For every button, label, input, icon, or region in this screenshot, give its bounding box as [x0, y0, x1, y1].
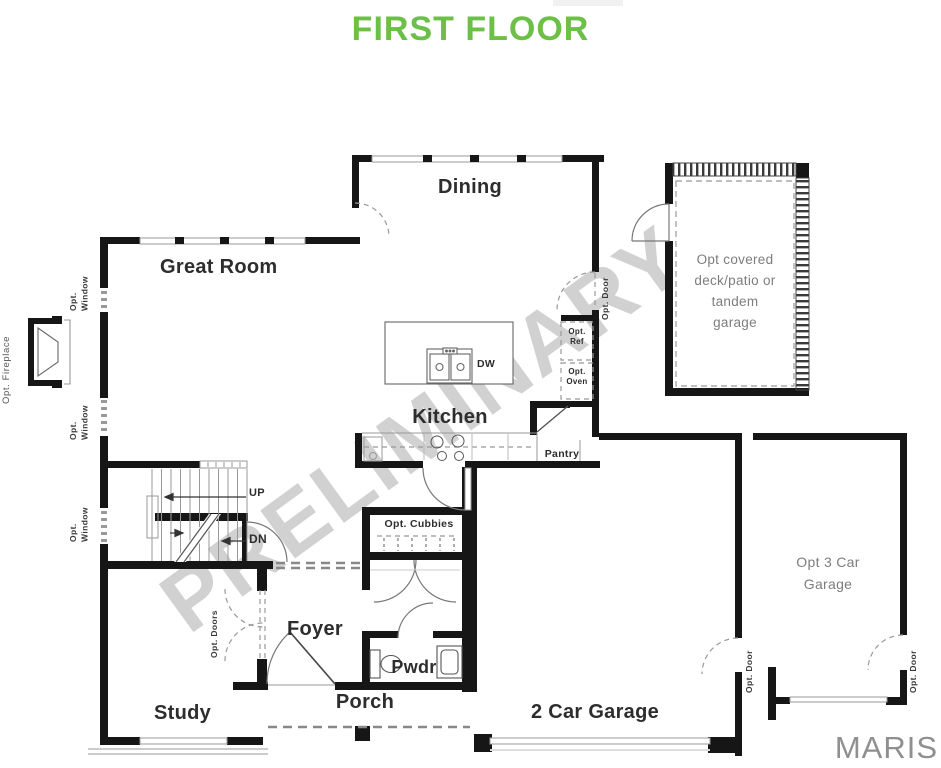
- annotation-opt-cubbies: Opt. Cubbies: [378, 518, 460, 530]
- windows: [88, 155, 887, 755]
- room-label-2-car-garage: 2 Car Garage: [525, 701, 665, 724]
- room-label-powder: Pwdr: [385, 657, 443, 678]
- annotation-opt-ref: Opt. Ref: [563, 327, 591, 347]
- annotation-opt-fireplace: Opt. Fireplace: [1, 298, 14, 404]
- room-label-pantry: Pantry: [538, 448, 586, 460]
- annotation-opt-doors-study: Opt. Doors: [209, 596, 220, 658]
- cooktop: [431, 435, 464, 461]
- room-label-study: Study: [140, 702, 225, 725]
- annotation-opt-door-garage: Opt. Door: [744, 629, 755, 693]
- walls: [28, 155, 907, 756]
- room-label-opt-deck: Opt covered deck/patio or tandem garage: [676, 250, 794, 334]
- annotation-up: UP: [249, 487, 265, 499]
- annotation-down: DN: [249, 532, 267, 546]
- room-label-great-room: Great Room: [160, 256, 277, 279]
- room-label-opt-3-car-garage: Opt 3 Car Garage: [778, 552, 878, 595]
- annotation-opt-door-3car: Opt. Door: [908, 629, 919, 693]
- room-label-foyer: Foyer: [275, 618, 355, 641]
- annotation-opt-window-3: Opt.Window: [68, 494, 91, 542]
- kitchen-island: [385, 322, 513, 384]
- floorplan-drawing: [0, 0, 941, 768]
- maris-watermark: MARIS: [835, 730, 938, 766]
- room-label-dining: Dining: [425, 176, 515, 199]
- annotation-opt-oven: Opt. Oven: [561, 367, 593, 387]
- annotation-opt-window-1: Opt.Window: [68, 261, 91, 311]
- floorplan-page: FIRST FLOOR PRELIMINARY: [0, 0, 941, 768]
- annotation-opt-door-dining: Opt. Door: [600, 268, 611, 320]
- room-label-porch: Porch: [325, 691, 405, 714]
- annotation-dishwasher: DW: [477, 358, 495, 370]
- fireplace-firebox: [38, 320, 70, 384]
- annotation-opt-window-2: Opt.Window: [68, 392, 91, 440]
- room-label-kitchen: Kitchen: [400, 406, 500, 429]
- stair-break-line: [174, 514, 221, 562]
